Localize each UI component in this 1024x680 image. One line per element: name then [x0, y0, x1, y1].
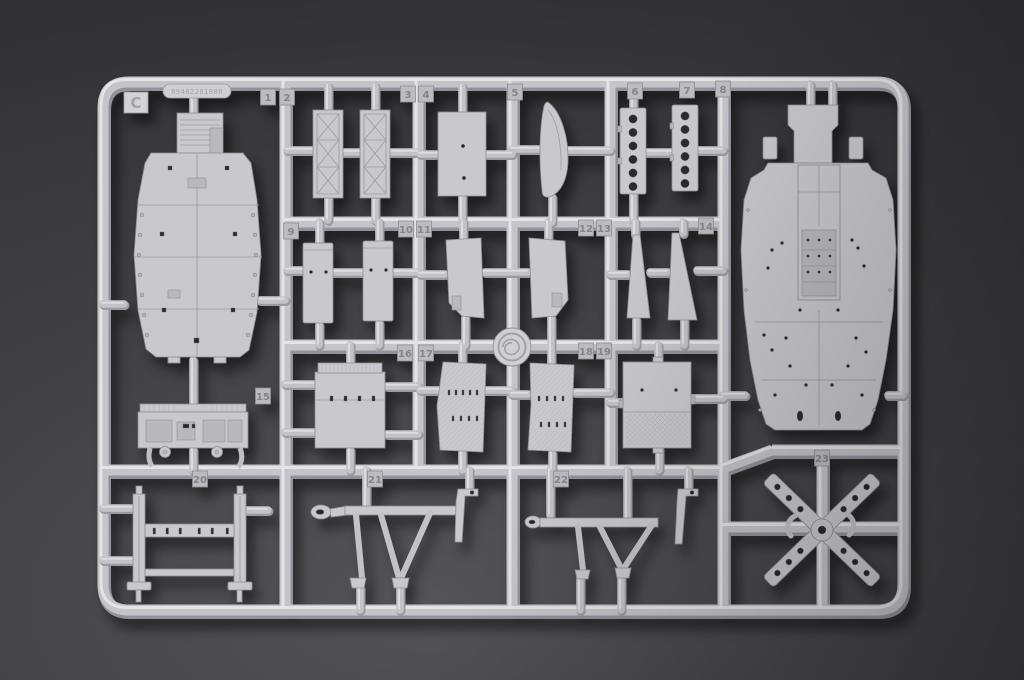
part-10-side-plate	[363, 241, 393, 321]
part-number-tab-6: 6	[628, 83, 643, 99]
part-3-4-flat-plate	[438, 112, 486, 196]
part-number-label: 12	[579, 224, 593, 235]
sprue: C 09482201000 12345678910111213141516171…	[101, 80, 905, 613]
part-17-textured-deck	[437, 362, 486, 452]
part-number-tab-19: 19	[597, 343, 612, 359]
part-18-textured-deck	[528, 363, 574, 452]
part-number-label: 22	[554, 475, 568, 486]
part-number-tab-2: 2	[280, 89, 295, 105]
part-12-angled-panel	[529, 238, 568, 318]
part-number-tab-13: 13	[597, 220, 612, 236]
part-number-tab-7: 7	[680, 82, 695, 98]
part-21-tow-frame	[311, 489, 478, 588]
manufacturer-logo-icon	[493, 328, 531, 366]
part-2-lattice-girder	[360, 110, 390, 198]
part-number-label: 4	[423, 90, 430, 101]
part-number-label: 11	[417, 225, 431, 236]
part-number-tab-5: 5	[508, 84, 523, 100]
part-14-tapered-blade	[668, 233, 697, 320]
part-6-perforated-strip	[618, 108, 646, 194]
photo-background: C 09482201000 12345678910111213141516171…	[0, 0, 1024, 680]
part-number-label: 2	[284, 93, 291, 104]
part-number-label: 1	[265, 93, 272, 104]
mold-code-tag: 09482201000	[163, 84, 231, 98]
part-7-perforated-strip	[670, 105, 698, 191]
part-number-label: 7	[684, 86, 691, 97]
part-8-hull-upper-deck	[741, 105, 896, 430]
part-number-tab-15: 15	[256, 388, 271, 404]
part-number-label: 19	[597, 347, 611, 358]
part-13-tapered-blade	[627, 235, 650, 318]
part-11-angled-panel	[446, 238, 484, 318]
part-number-label: 3	[405, 90, 412, 101]
part-number-label: 16	[398, 349, 412, 360]
mold-code: 09482201000	[171, 88, 223, 96]
part-number-label: 23	[815, 454, 829, 465]
part-number-label: 15	[256, 392, 270, 403]
part-20-h-frame	[127, 486, 252, 602]
part-number-tab-16: 16	[398, 345, 413, 361]
part-5-curved-panel	[540, 102, 568, 197]
part-number-label: 21	[368, 475, 382, 486]
part-9-side-plate	[303, 243, 333, 323]
part-number-tab-20: 20	[193, 471, 208, 487]
part-number-label: 8	[720, 85, 727, 96]
part-number-tab-21: 21	[368, 471, 383, 487]
part-number-tab-11: 11	[417, 221, 432, 237]
part-number-label: 6	[632, 87, 639, 98]
part-16-ribbed-panel	[315, 363, 385, 448]
part-number-label: 18	[579, 347, 593, 358]
part-number-tab-18: 18	[579, 343, 594, 359]
part-number-tab-23: 23	[815, 450, 830, 466]
part-number-tab-12: 12	[579, 220, 594, 236]
part-number-label: 20	[193, 475, 207, 486]
part-number-tab-4: 4	[419, 86, 434, 102]
part-number-label: 5	[512, 88, 519, 99]
sprue-photo: C 09482201000 12345678910111213141516171…	[0, 0, 1024, 680]
part-number-label: 14	[699, 222, 713, 233]
part-number-tab-17: 17	[419, 345, 434, 361]
part-number-tab-3: 3	[401, 86, 416, 102]
part-number-tab-14: 14	[699, 218, 714, 234]
part-number-tab-8: 8	[716, 81, 731, 97]
part-number-tab-1: 1	[261, 89, 276, 105]
part-number-tab-10: 10	[399, 221, 414, 237]
sprue-letter: C	[130, 94, 141, 112]
part-1-lattice-girder	[313, 110, 343, 198]
part-number-label: 10	[399, 225, 413, 236]
part-number-label: 9	[288, 227, 295, 238]
part-number-tab-22: 22	[554, 471, 569, 487]
part-19-tread-panel	[619, 357, 695, 453]
part-number-tab-9: 9	[284, 223, 299, 239]
part-number-label: 13	[597, 224, 611, 235]
part-hull-lower-plate	[134, 113, 262, 363]
sprue-letter-tab: C	[124, 92, 148, 113]
part-number-label: 17	[419, 349, 433, 360]
